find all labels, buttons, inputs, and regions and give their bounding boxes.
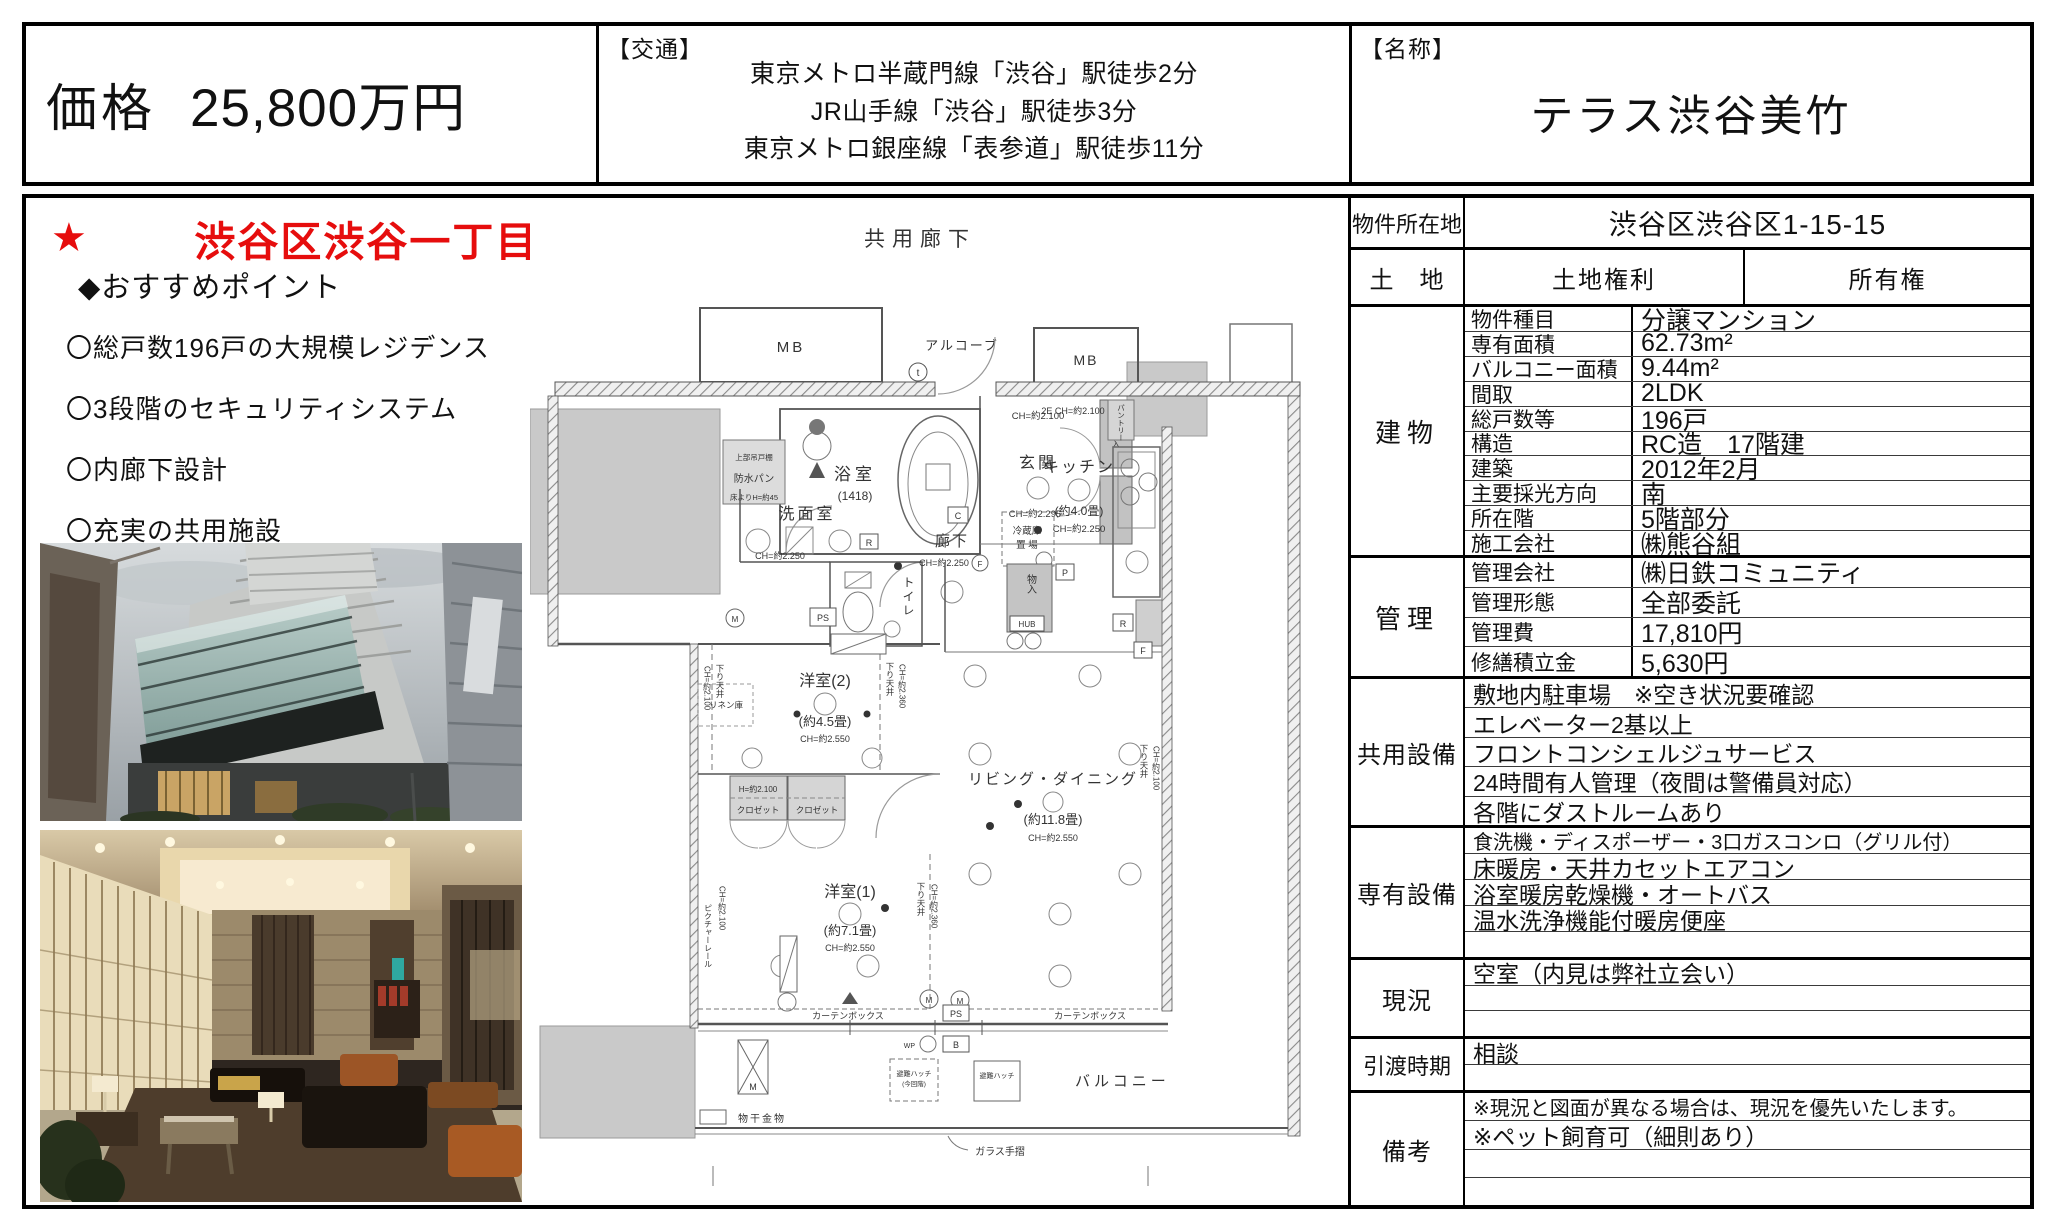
price-cell: 価格 25,800万円 bbox=[26, 26, 599, 182]
fp-label-living-size: (約11.8畳) bbox=[1024, 812, 1083, 827]
transport-line: 東京メトロ半蔵門線「渋谷」駅徒歩2分 bbox=[599, 56, 1349, 94]
fp-label-closet: クロゼット bbox=[737, 805, 780, 815]
fp-label-ch2295: CH=約2.295 bbox=[1009, 508, 1062, 520]
fp-label-ch2250: CH=約2.250 bbox=[755, 550, 805, 561]
fp-label-bath: 浴室 bbox=[834, 465, 876, 484]
table-section-handover: 引渡時期 相談 bbox=[1351, 1039, 2030, 1093]
fp-label-bedroom1-size: (約7.1畳) bbox=[824, 923, 877, 938]
name-tag: 【名称】 bbox=[1360, 30, 1456, 64]
building-photo-illustration bbox=[40, 543, 522, 821]
table-row: エレベーター2基以上 bbox=[1465, 708, 2030, 737]
fp-label-ch2550: CH=約2.550 bbox=[825, 942, 875, 953]
fp-label-bath-size: (1418) bbox=[838, 489, 873, 503]
table-section-shared-facilities: 共用設備 敷地内駐車場 ※空き状況要確認 エレベーター2基以上 フロントコンシェ… bbox=[1351, 679, 2030, 828]
building-photo bbox=[40, 543, 522, 821]
fp-label-linen: リネン庫 bbox=[709, 700, 744, 710]
table-row bbox=[1465, 932, 2030, 957]
fp-label-c: C bbox=[955, 511, 962, 521]
table-section-private-facilities: 専有設備 食洗機・ディスポーザー・3口ガスコンロ（グリル付） 床暖房・天井カセッ… bbox=[1351, 828, 2030, 960]
table-row: バルコニー面積9.44m² bbox=[1465, 357, 2030, 382]
fp-label-r: R bbox=[1120, 619, 1127, 629]
header-band: 価格 25,800万円 【交通】 東京メトロ半蔵門線「渋谷」駅徒歩2分 JR山手… bbox=[22, 22, 2034, 186]
table-row: 24時間有人管理（夜間は警備員対応） bbox=[1465, 767, 2030, 796]
table-row bbox=[1465, 1065, 2030, 1090]
fp-label-toilet: トイレ bbox=[901, 576, 915, 618]
fp-label-f: F bbox=[978, 560, 983, 569]
transport-line: JR山手線「渋谷」駅徒歩3分 bbox=[599, 94, 1349, 132]
fp-label-closet-h: H=約2.100 bbox=[739, 784, 778, 794]
fp-label-hatch: 避難ハッチ bbox=[980, 1071, 1015, 1080]
transport-line: 東京メトロ銀座線「表参道」駅徒歩11分 bbox=[599, 131, 1349, 169]
fp-label-hub: HUB bbox=[1019, 620, 1036, 629]
land-rights-value: 所有権 bbox=[1745, 260, 2030, 295]
fp-label-bedroom1: 洋室(1) bbox=[824, 883, 876, 901]
fp-label-lowered-ceiling: 下り天井 bbox=[715, 664, 725, 699]
lobby-photo bbox=[40, 830, 522, 1202]
fp-label-ps: PS bbox=[950, 1009, 962, 1019]
fp-label-ch2250: CH=約2.250 bbox=[1053, 523, 1106, 535]
fp-label-bedroom2: 洋室(2) bbox=[799, 672, 851, 690]
fp-label-storage: 物入 bbox=[1025, 573, 1037, 594]
land-label: 土 地 bbox=[1351, 250, 1465, 304]
handover-label: 引渡時期 bbox=[1351, 1039, 1465, 1090]
management-label: 管理 bbox=[1351, 558, 1465, 676]
table-row: 各階にダストルームあり bbox=[1465, 797, 2030, 825]
fp-label-lowered-ceiling: 下り天井 bbox=[916, 882, 926, 917]
fp-label-t: t bbox=[917, 368, 920, 379]
fp-label-b: B bbox=[953, 1040, 959, 1050]
fp-label-ch2550: CH=約2.550 bbox=[1028, 832, 1078, 843]
fp-label-lowered-ceiling: 下り天井 bbox=[1139, 744, 1149, 779]
star-icon: ★ bbox=[51, 215, 87, 261]
price: 価格 25,800万円 bbox=[46, 66, 466, 142]
fp-label-hall: 廊下 bbox=[935, 533, 969, 550]
fp-label-hatch: 避難ハッチ bbox=[897, 1069, 932, 1078]
fp-label-fridge: 冷蔵庫 bbox=[1013, 525, 1042, 537]
fp-label-ch2100: CH=約2.100 bbox=[718, 886, 727, 931]
fp-label-upper-cabinet: 上部吊戸棚 bbox=[735, 452, 773, 462]
fp-label-mb: MB bbox=[777, 339, 806, 356]
fp-label-ch2550: CH=約2.550 bbox=[800, 733, 850, 744]
fp-label-glass-rail: ガラス手摺 bbox=[975, 1145, 1025, 1158]
fp-label-closet: クロゼット bbox=[796, 805, 839, 815]
current-status-label: 現況 bbox=[1351, 960, 1465, 1036]
table-row: 相談 bbox=[1465, 1039, 2030, 1065]
table-section-building: 建物 物件種目分譲マンション 専有面積62.73m² バルコニー面積9.44m²… bbox=[1351, 307, 2030, 558]
table-row: 空室（内見は弊社立会い） bbox=[1465, 960, 2030, 986]
fp-label-r: R bbox=[866, 538, 873, 548]
fp-label-fridge2: 置 場 bbox=[1016, 539, 1038, 551]
location-label: 物件所在地 bbox=[1351, 198, 1465, 247]
fp-label-washroom: 洗面室 bbox=[778, 505, 835, 523]
flyer-sheet: 価格 25,800万円 【交通】 東京メトロ半蔵門線「渋谷」駅徒歩2分 JR山手… bbox=[0, 0, 2056, 1231]
fp-label-p: P bbox=[1062, 568, 1068, 578]
table-section-location: 物件所在地 渋谷区渋谷区1-15-15 bbox=[1351, 198, 2030, 250]
transport-tag: 【交通】 bbox=[607, 30, 703, 64]
table-row: 温水洗浄機能付暖房便座 bbox=[1465, 906, 2030, 932]
fp-label-mb: MB bbox=[1074, 352, 1099, 368]
lobby-photo-illustration bbox=[40, 830, 522, 1202]
fp-label-curtain-box: カーテンボックス bbox=[812, 1011, 884, 1021]
fp-label-ch2360: CH=約2.360 bbox=[930, 884, 939, 929]
fp-label-2e-ch: 2E CH=約2.100 bbox=[1041, 405, 1104, 416]
table-row: 施工会社㈱熊谷組 bbox=[1465, 531, 2030, 555]
fp-label-corridor: 共用廊下 bbox=[864, 228, 976, 251]
table-section-remarks: 備考 ※現況と図面が異なる場合は、現況を優先いたします。 ※ペット飼育可（細則あ… bbox=[1351, 1093, 2030, 1205]
price-value: 25,800万円 bbox=[190, 66, 466, 142]
fp-label-ps: PS bbox=[817, 613, 829, 623]
fp-label-ch2360: CH=約2.360 bbox=[898, 664, 907, 709]
table-row bbox=[1465, 1178, 2030, 1205]
name-cell: 【名称】 テラス渋谷美竹 bbox=[1352, 26, 2030, 182]
table-row bbox=[1465, 986, 2030, 1012]
location-value: 渋谷区渋谷区1-15-15 bbox=[1465, 203, 2030, 243]
fp-label-living: リビング・ダイニング bbox=[968, 771, 1138, 788]
table-section-management: 管理 管理会社㈱日鉄コミュニティ 管理形態全部委託 管理費17,810円 修繕積… bbox=[1351, 558, 2030, 679]
recommend-points: 〇総戸数196戸の大規模レジデンス 〇3段階のセキュリティシステム 〇内廊下設計… bbox=[66, 328, 490, 572]
fp-label-m: M bbox=[926, 996, 933, 1005]
price-label: 価格 bbox=[46, 67, 156, 141]
fp-label-f: F bbox=[1140, 646, 1146, 656]
spec-table: 物件所在地 渋谷区渋谷区1-15-15 土 地 土地権利 所有権 建物 物件種目… bbox=[1348, 198, 2030, 1205]
remarks-label: 備考 bbox=[1351, 1093, 1465, 1205]
fp-label-floor-h: 床よりH=約45 bbox=[730, 492, 778, 502]
points-title: ◆おすすめポイント bbox=[78, 264, 341, 306]
table-row: 敷地内駐車場 ※空き状況要確認 bbox=[1465, 679, 2030, 708]
fp-label-kitchen: キッチン bbox=[1043, 459, 1115, 476]
transport-lines: 東京メトロ半蔵門線「渋谷」駅徒歩2分 JR山手線「渋谷」駅徒歩3分 東京メトロ銀… bbox=[599, 56, 1349, 169]
table-section-current-status: 現況 空室（内見は弊社立会い） bbox=[1351, 960, 2030, 1039]
fp-label-pantry: パントリー bbox=[1116, 404, 1125, 442]
table-row bbox=[1465, 1011, 2030, 1036]
fp-label-curtain-box: カーテンボックス bbox=[1054, 1011, 1126, 1021]
property-name: テラス渋谷美竹 bbox=[1352, 82, 2030, 144]
fp-label-kitchen-size: (約4.0畳) bbox=[1055, 503, 1104, 518]
fp-label-ch2100: CH=約2.100 bbox=[1152, 746, 1161, 791]
fp-label-lowered-ceiling: 下り天井 bbox=[885, 662, 895, 697]
table-section-land: 土 地 土地権利 所有権 bbox=[1351, 250, 2030, 307]
fp-label-wp: WP bbox=[904, 1043, 916, 1050]
floor-plan: 共用廊下 アルコーブ MB MB t bbox=[530, 214, 1330, 1204]
recommend-point: 〇内廊下設計 bbox=[66, 450, 490, 487]
table-row: フロントコンシェルジュサービス bbox=[1465, 738, 2030, 767]
fp-label-ch2250: CH=約2.250 bbox=[919, 557, 969, 568]
fp-label-balcony: バルコニー bbox=[1075, 1073, 1170, 1090]
building-label: 建物 bbox=[1351, 307, 1465, 555]
table-row: ※ペット飼育可（細則あり） bbox=[1465, 1121, 2030, 1149]
fp-label-hatch-note: (今回階) bbox=[902, 1079, 926, 1088]
main-body: ★ 渋谷区渋谷一丁目アドレス・免震タワーレジデンス ★ ◆おすすめポイント 〇総… bbox=[22, 194, 2034, 1209]
table-row: 修繕積立金5,630円 bbox=[1465, 647, 2030, 676]
fp-label-bedroom2-size: (約4.5畳) bbox=[799, 714, 852, 729]
fp-label-m: M bbox=[749, 1082, 757, 1092]
land-rights-label: 土地権利 bbox=[1465, 250, 1745, 304]
fp-label-picture-rail: ピクチャーレール bbox=[704, 904, 713, 968]
shared-facilities-label: 共用設備 bbox=[1351, 679, 1465, 825]
recommend-point: 〇3段階のセキュリティシステム bbox=[66, 389, 490, 426]
fp-label-m: M bbox=[732, 615, 739, 624]
recommend-point: 〇総戸数196戸の大規模レジデンス bbox=[66, 328, 490, 365]
private-facilities-label: 専有設備 bbox=[1351, 828, 1465, 957]
fp-label-alcove: アルコーブ bbox=[925, 338, 999, 353]
transport-cell: 【交通】 東京メトロ半蔵門線「渋谷」駅徒歩2分 JR山手線「渋谷」駅徒歩3分 東… bbox=[599, 26, 1352, 182]
table-row bbox=[1465, 1150, 2030, 1178]
fp-label-waterproof-pan: 防水パン bbox=[734, 472, 775, 485]
fp-label-drying-fixture: 物干金物 bbox=[738, 1112, 786, 1125]
